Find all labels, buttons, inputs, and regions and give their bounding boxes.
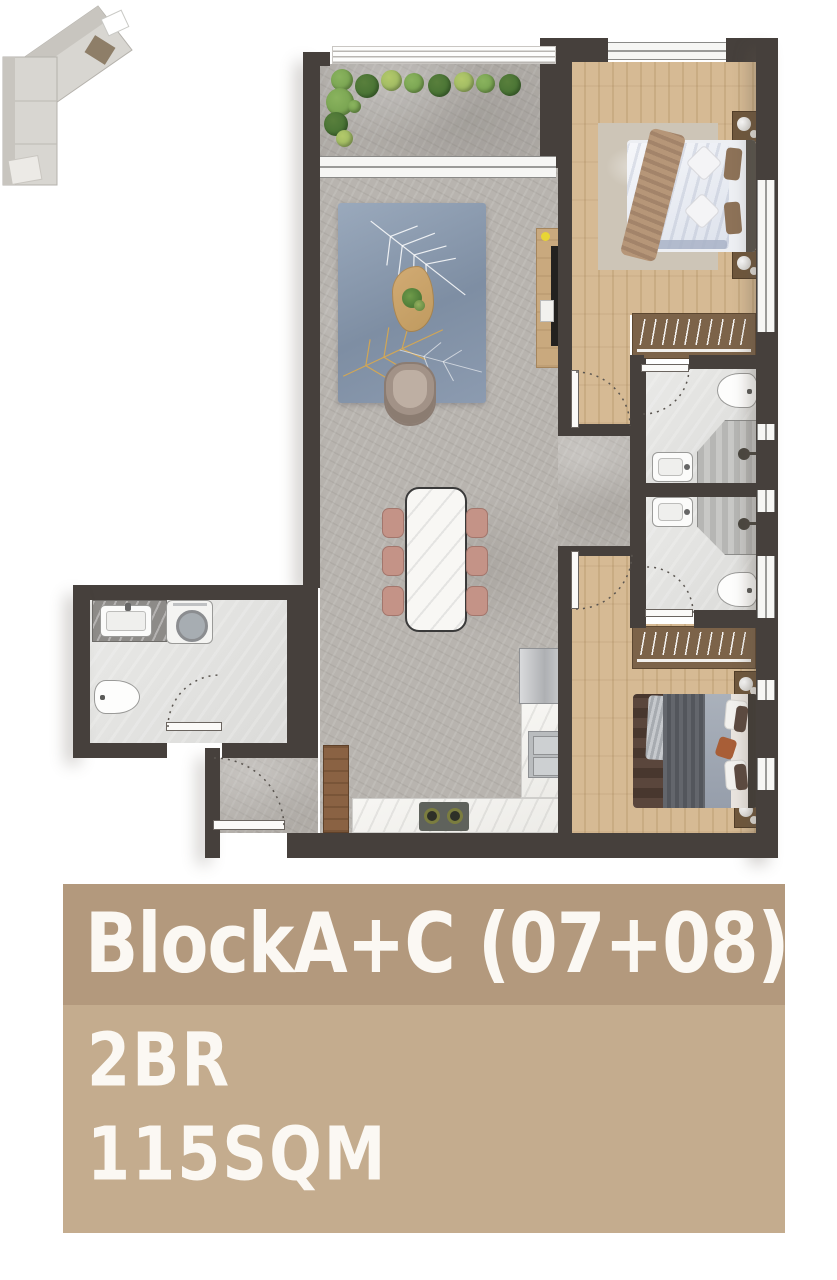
- info-panel: BlockA+C (07+08) 2BR 115SQM: [63, 884, 785, 1233]
- unit-area-label: 115SQM: [87, 1098, 785, 1211]
- floor-plan-page: BlockA+C (07+08) 2BR 115SQM: [0, 0, 837, 1280]
- unit-title: BlockA+C (07+08): [85, 895, 789, 992]
- door-arc-bathroom-2: [647, 567, 693, 613]
- door-arc-bedroom-2: [576, 553, 632, 609]
- door-arc-bedroom-1: [576, 372, 630, 426]
- door-arc-bathroom-1: [643, 368, 689, 414]
- panel-body: 2BR 115SQM: [63, 1005, 785, 1233]
- door-arc-entrance: [214, 758, 284, 828]
- panel-header: BlockA+C (07+08): [63, 884, 785, 1005]
- door-arc-guest-wc: [168, 675, 220, 727]
- door-swing-arcs: [0, 0, 837, 880]
